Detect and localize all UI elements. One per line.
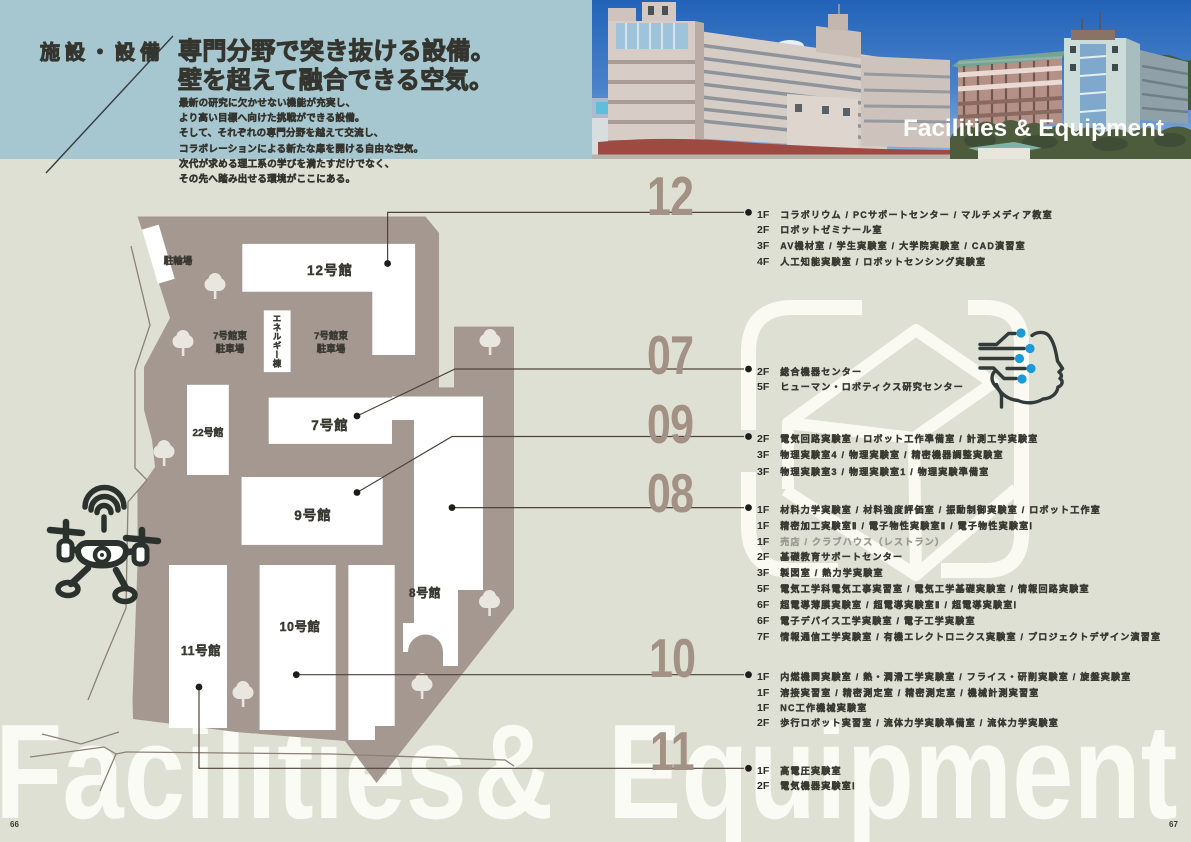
svg-text:Facilities & Equipment: Facilities & Equipment	[903, 115, 1164, 142]
